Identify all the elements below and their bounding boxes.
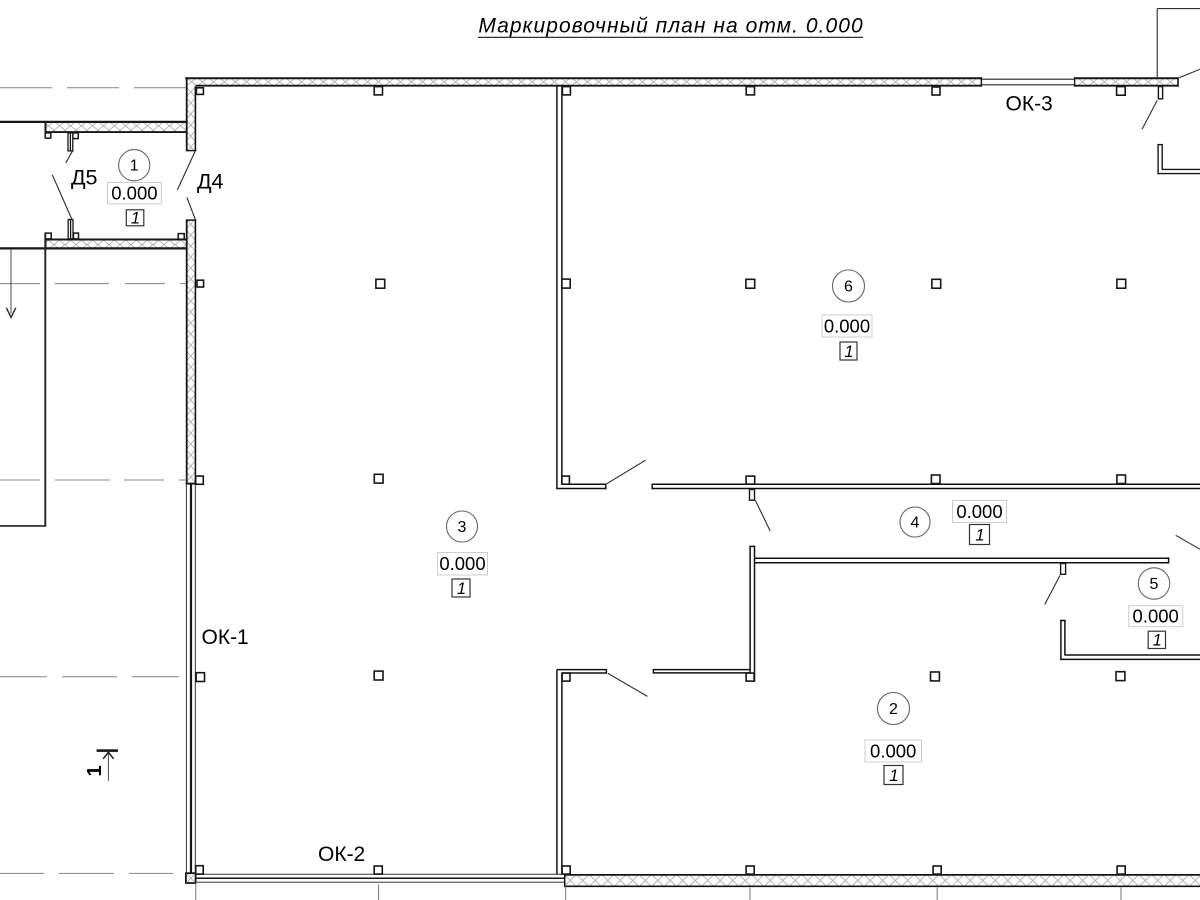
svg-text:0.000: 0.000 <box>439 553 485 574</box>
svg-text:1: 1 <box>84 765 106 776</box>
svg-text:0.000: 0.000 <box>870 741 916 762</box>
svg-text:ОК-3: ОК-3 <box>1006 93 1053 116</box>
svg-text:4: 4 <box>911 515 920 532</box>
svg-text:1: 1 <box>130 158 139 175</box>
svg-text:0.000: 0.000 <box>111 183 157 204</box>
svg-text:0.000: 0.000 <box>824 316 870 337</box>
svg-text:1: 1 <box>975 526 984 544</box>
svg-text:1: 1 <box>889 767 898 785</box>
svg-text:5: 5 <box>1150 576 1159 593</box>
svg-text:2: 2 <box>889 701 898 718</box>
svg-text:1: 1 <box>1153 632 1162 650</box>
svg-text:ОК-1: ОК-1 <box>202 626 249 649</box>
svg-text:1: 1 <box>131 210 140 228</box>
svg-text:1: 1 <box>457 580 466 598</box>
svg-text:Маркировочный план на отм. 0.0: Маркировочный план на отм. 0.000 <box>478 15 863 38</box>
svg-text:Д5: Д5 <box>71 166 98 190</box>
svg-text:Д4: Д4 <box>197 170 224 194</box>
svg-text:0.000: 0.000 <box>956 501 1002 522</box>
svg-text:3: 3 <box>458 519 467 536</box>
svg-text:0.000: 0.000 <box>1133 606 1179 627</box>
svg-text:1: 1 <box>844 343 853 361</box>
svg-text:6: 6 <box>844 279 853 296</box>
svg-text:ОК-2: ОК-2 <box>318 843 365 866</box>
